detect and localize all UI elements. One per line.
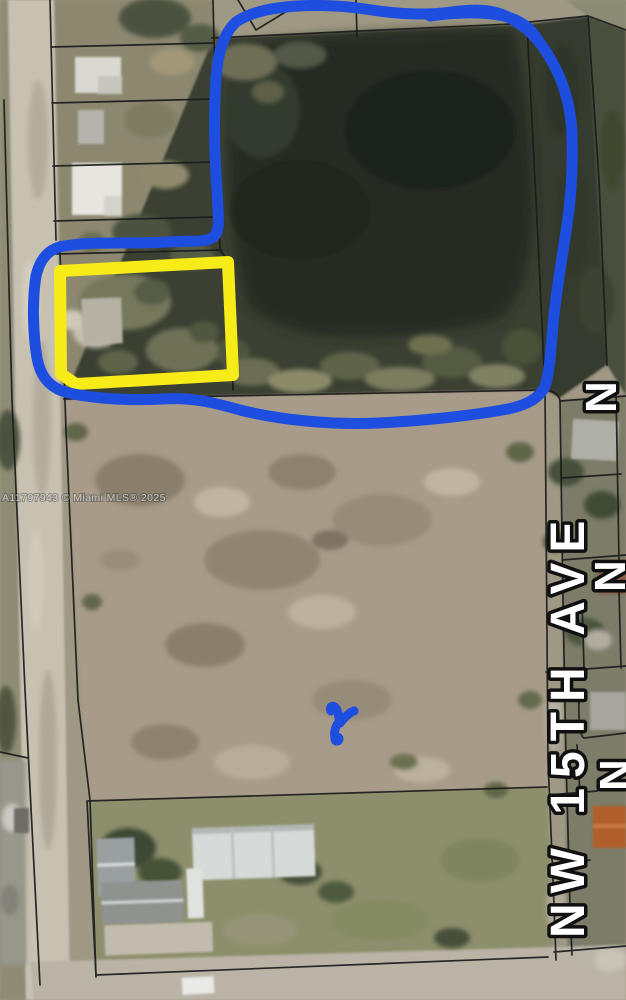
road-wear xyxy=(28,80,48,200)
dirt-light xyxy=(194,487,250,517)
shadow-patch xyxy=(1,884,19,916)
scrub xyxy=(150,49,194,75)
trees xyxy=(434,928,470,948)
west-building-strip xyxy=(0,760,26,965)
dirt-patch xyxy=(165,623,245,667)
scrub xyxy=(124,102,176,138)
dirt-patch xyxy=(100,549,140,571)
concrete-patch xyxy=(594,948,626,972)
white-structure xyxy=(186,868,204,919)
shrub xyxy=(484,782,508,798)
road-light xyxy=(28,530,44,630)
roof-ridge xyxy=(593,824,626,828)
dirt-patch xyxy=(312,530,348,550)
dirt-patch xyxy=(268,454,336,490)
shrub xyxy=(64,423,88,441)
trees xyxy=(134,279,170,305)
scrub xyxy=(141,161,189,189)
trees xyxy=(548,458,584,486)
trees xyxy=(189,321,219,343)
dirt-light xyxy=(288,595,356,629)
scrub xyxy=(252,81,284,103)
driveway xyxy=(104,922,213,956)
pond-shade xyxy=(230,160,370,260)
canopy xyxy=(408,335,452,355)
dirt-light xyxy=(424,468,480,496)
grass-patch xyxy=(224,914,296,946)
aerial-map: NW 15TH AVE N N N A11797943 © Miami MLS®… xyxy=(0,0,626,1000)
shrub xyxy=(518,691,542,709)
aerial-map-screenshot: NW 15TH AVE N N N A11797943 © Miami MLS®… xyxy=(0,0,626,1000)
trees xyxy=(98,350,138,374)
edge-street-label: N xyxy=(577,381,626,413)
mls-watermark: A11797943 © Miami MLS® 2025 xyxy=(2,492,166,504)
road-wear xyxy=(39,670,57,850)
shrub xyxy=(390,754,418,770)
grass-patch xyxy=(330,900,430,940)
house-roof xyxy=(78,110,104,144)
canopy xyxy=(502,329,542,365)
blue-scribble-blob xyxy=(331,733,344,746)
dirt-patch xyxy=(446,712,514,748)
trees xyxy=(578,266,614,334)
house-roof xyxy=(81,297,123,344)
house-roof xyxy=(104,196,122,216)
dirt-patch xyxy=(204,530,320,590)
edge-street-label: N xyxy=(591,759,626,791)
shrub xyxy=(82,594,102,610)
edge-street-label: N xyxy=(586,560,626,592)
dirt-patch xyxy=(386,598,478,646)
grass-patch xyxy=(440,838,520,882)
vehicle xyxy=(14,808,29,833)
scrub xyxy=(274,42,326,68)
house-roof xyxy=(98,76,122,94)
house-roof xyxy=(590,692,626,730)
trees xyxy=(318,881,354,903)
trees xyxy=(600,110,624,190)
pond-deep-shade xyxy=(345,70,515,190)
shrub xyxy=(506,442,534,462)
canopy xyxy=(469,364,525,388)
vehicle xyxy=(182,976,215,995)
canopy xyxy=(268,369,332,393)
canopy xyxy=(365,367,435,391)
house-roof xyxy=(571,419,619,461)
dirt-light xyxy=(214,745,290,779)
dirt-patch xyxy=(131,724,199,760)
